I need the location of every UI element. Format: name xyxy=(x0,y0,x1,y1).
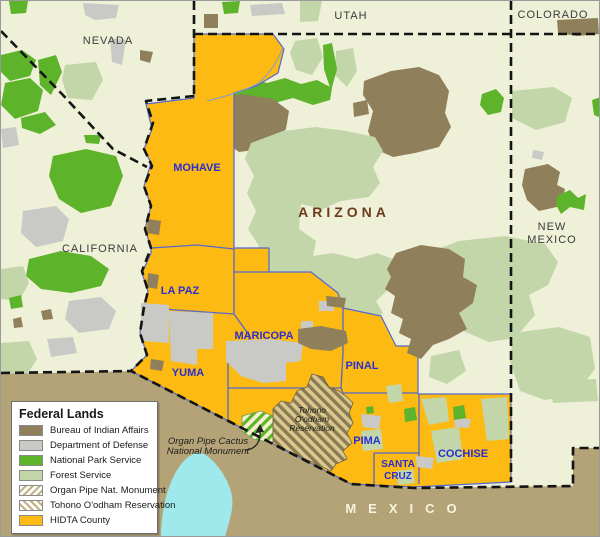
label-utah: UTAH xyxy=(334,10,367,22)
label-new-mexico-line2: MEXICO xyxy=(527,234,576,246)
label-colorado: COLORADO xyxy=(518,9,589,21)
label-organ-pipe-line2: National Monument xyxy=(167,446,250,457)
label-tohono-line3: Reservation xyxy=(289,423,335,433)
label-county-santa-cruz-line2: CRUZ xyxy=(384,471,412,482)
tohono-swatch xyxy=(19,500,43,511)
legend-item-fs: Forest Service xyxy=(19,470,150,481)
arizona-hidta-map: NEVADA UTAH COLORADO CALIFORNIA NEW MEXI… xyxy=(0,0,600,537)
legend-title: Federal Lands xyxy=(19,407,150,421)
dod-swatch xyxy=(19,440,43,451)
organ-pipe-swatch xyxy=(19,485,43,496)
label-california: CALIFORNIA xyxy=(62,243,138,255)
label-county-maricopa: MARICOPA xyxy=(234,330,293,342)
label-county-pima: PIMA xyxy=(353,435,381,447)
label-county-la-paz: LA PAZ xyxy=(161,285,200,297)
legend-item-dod: Department of Defense xyxy=(19,440,150,451)
fs-swatch xyxy=(19,470,43,481)
legend-item-tohono: Tohono O'odham Reservation xyxy=(19,500,150,511)
legend-federal-lands: Federal Lands Bureau of Indian Affairs D… xyxy=(11,401,158,534)
label-county-yuma: YUMA xyxy=(172,367,204,379)
bia-swatch xyxy=(19,425,43,436)
nps-swatch xyxy=(19,455,43,466)
label-county-pinal: PINAL xyxy=(346,360,379,372)
legend-item-hidta: HIDTA County xyxy=(19,515,150,526)
legend-item-organ-pipe: Organ Pipe Nat. Monument xyxy=(19,485,150,496)
hidta-swatch xyxy=(19,515,43,526)
label-county-cochise: COCHISE xyxy=(438,448,488,460)
label-nevada: NEVADA xyxy=(83,35,133,47)
label-mexico: MEXICO xyxy=(345,501,468,516)
label-new-mexico-line1: NEW xyxy=(538,221,567,233)
legend-item-nps: National Park Service xyxy=(19,455,150,466)
label-county-mohave: MOHAVE xyxy=(173,162,220,174)
label-arizona: ARIZONA xyxy=(298,204,390,220)
label-county-santa-cruz-line1: SANTA xyxy=(381,459,415,470)
legend-item-bia: Bureau of Indian Affairs xyxy=(19,425,150,436)
